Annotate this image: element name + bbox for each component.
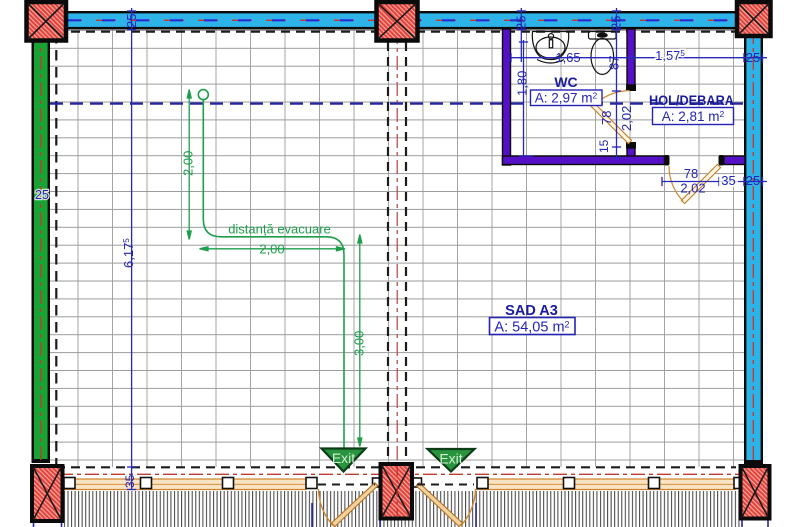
svg-text:78: 78 bbox=[684, 166, 698, 181]
svg-text:25: 25 bbox=[746, 173, 760, 188]
svg-text:2,00: 2,00 bbox=[259, 242, 284, 257]
svg-text:SAD A3: SAD A3 bbox=[505, 303, 558, 319]
svg-text:25: 25 bbox=[35, 188, 49, 202]
svg-text:distanță evacuare: distanță evacuare bbox=[228, 222, 331, 237]
svg-text:25: 25 bbox=[746, 50, 760, 65]
svg-text:25: 25 bbox=[124, 14, 139, 28]
svg-text:A: 2,81 m2: A: 2,81 m2 bbox=[662, 109, 725, 124]
svg-text:15: 15 bbox=[597, 139, 611, 153]
svg-text:HOL/DEBARA: HOL/DEBARA bbox=[649, 93, 734, 108]
svg-text:35: 35 bbox=[721, 173, 735, 188]
svg-text:1,80: 1,80 bbox=[515, 71, 530, 96]
svg-text:2,02: 2,02 bbox=[680, 181, 705, 196]
svg-text:Exit: Exit bbox=[332, 450, 355, 466]
svg-text:Exit: Exit bbox=[439, 451, 462, 467]
svg-text:25: 25 bbox=[514, 16, 529, 30]
svg-text:A: 54,05 m2: A: 54,05 m2 bbox=[494, 320, 569, 336]
svg-text:25: 25 bbox=[609, 16, 624, 30]
svg-text:3,00: 3,00 bbox=[352, 331, 367, 356]
svg-text:1,65: 1,65 bbox=[555, 50, 580, 65]
svg-text:A: 2,97 m2: A: 2,97 m2 bbox=[535, 91, 598, 106]
svg-text:2,02: 2,02 bbox=[619, 106, 634, 131]
svg-text:WC: WC bbox=[554, 74, 577, 90]
svg-text:35: 35 bbox=[123, 474, 137, 488]
svg-text:2,00: 2,00 bbox=[181, 151, 196, 176]
svg-text:78: 78 bbox=[599, 111, 614, 125]
